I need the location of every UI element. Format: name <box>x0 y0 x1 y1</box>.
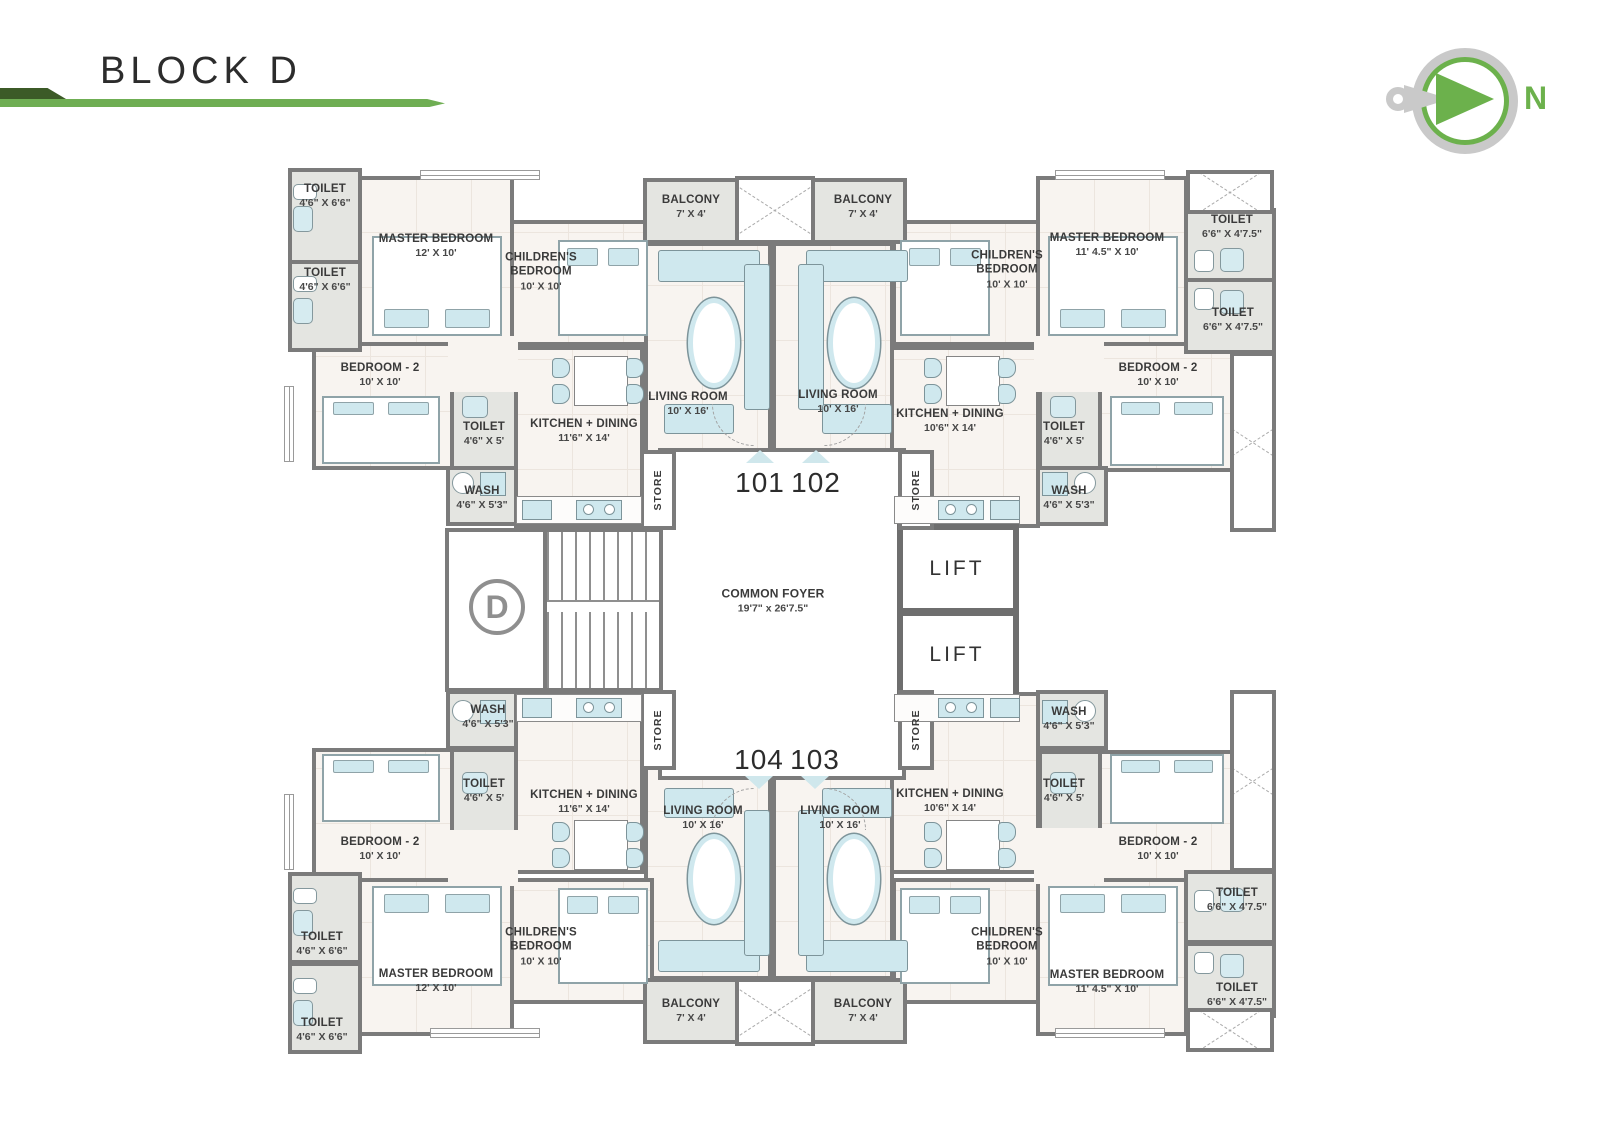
sofa-icon <box>744 264 770 410</box>
toilet-wc-icon <box>1220 954 1244 978</box>
chair-icon <box>626 848 644 868</box>
corridor-104 <box>448 830 518 886</box>
title-accent-bar-dark <box>0 88 66 99</box>
window <box>1055 170 1165 180</box>
corridor-103 <box>1034 828 1104 884</box>
unit-number-102: 102 <box>791 467 841 499</box>
label-store-102: STORE <box>910 470 922 511</box>
chair-icon <box>924 822 942 842</box>
basin-icon <box>293 888 317 904</box>
duct-shaft <box>1186 1008 1274 1052</box>
sink-icon <box>990 698 1020 718</box>
chair-icon <box>626 358 644 378</box>
chair-icon <box>924 848 942 868</box>
label-lift-2: LIFT <box>929 643 984 667</box>
chair-icon <box>998 848 1016 868</box>
entry-arrow-103 <box>801 776 829 789</box>
compass-tail-ring-icon <box>1386 87 1410 111</box>
label-toilet-a-101: TOILET4'6" X 6'6" <box>280 182 370 211</box>
label-kitchen-103: KITCHEN + DINING10'6" X 14' <box>870 787 1030 816</box>
window <box>284 794 294 870</box>
stove-icon <box>576 500 622 520</box>
chair-icon <box>924 384 942 404</box>
unit-number-101: 101 <box>735 467 785 499</box>
label-toilet-b-101: TOILET4'6" X 6'6" <box>280 266 370 295</box>
dining-table-icon <box>946 820 1000 870</box>
coffee-table-icon <box>688 834 740 924</box>
label-wash-101: WASH4'6" X 5'3" <box>442 484 522 513</box>
label-living-102: LIVING ROOM10' X 16' <box>778 388 898 417</box>
title-underline-bar <box>0 99 445 107</box>
stove-icon <box>938 698 984 718</box>
duct-shaft <box>1230 690 1276 872</box>
chair-icon <box>924 358 942 378</box>
chair-icon <box>626 822 644 842</box>
north-arrow-icon <box>1436 73 1494 125</box>
label-bedroom2-101: BEDROOM - 210' X 10' <box>320 361 440 390</box>
chair-icon <box>998 822 1016 842</box>
label-master-102: MASTER BEDROOM11' 4.5" X 10' <box>1032 231 1182 260</box>
north-compass: N <box>1390 44 1560 164</box>
window <box>284 386 294 462</box>
stair-mid-landing <box>547 600 659 612</box>
window <box>1055 1028 1165 1038</box>
label-common-foyer: COMMON FOYER19'7" x 26'7.5" <box>683 586 863 615</box>
basin-icon <box>293 978 317 994</box>
unit-number-103: 103 <box>790 744 840 776</box>
coffee-table-icon <box>688 298 740 388</box>
toilet-wc-icon <box>293 298 313 324</box>
label-toilet-c-103: TOILET4'6" X 5' <box>1024 777 1104 806</box>
basin-icon <box>1194 250 1214 272</box>
coffee-table-icon <box>828 834 880 924</box>
label-store-104: STORE <box>652 710 664 751</box>
toilet-wc-icon <box>1220 248 1244 272</box>
label-kitchen-101: KITCHEN + DINING11'6" X 14' <box>504 417 664 446</box>
sink-icon <box>522 500 552 520</box>
label-balcony-104: BALCONY7' X 4' <box>646 997 736 1026</box>
label-toilet-a-104: TOILET4'6" X 6'6" <box>277 930 367 959</box>
duct-shaft <box>735 978 815 1046</box>
double-bed-icon <box>322 754 440 822</box>
label-children-103: CHILDREN'S BEDROOM10' X 10' <box>961 926 1053 969</box>
label-bedroom2-102: BEDROOM - 210' X 10' <box>1098 361 1218 390</box>
double-bed-icon <box>1110 396 1224 466</box>
label-bedroom2-104: BEDROOM - 210' X 10' <box>320 835 440 864</box>
basin-icon <box>1194 952 1214 974</box>
label-toilet-a-102: TOILET6'6" X 4'7.5" <box>1177 213 1287 242</box>
label-store-101: STORE <box>652 470 664 511</box>
corridor-101 <box>448 336 518 392</box>
label-kitchen-104: KITCHEN + DINING11'6" X 14' <box>504 788 664 817</box>
label-wash-103: WASH4'6" X 5'3" <box>1029 705 1109 734</box>
label-lift-1: LIFT <box>929 557 984 581</box>
toilet-wc-icon <box>1050 396 1076 418</box>
window <box>430 1028 540 1038</box>
label-living-101: LIVING ROOM10' X 16' <box>628 390 748 419</box>
duct-shaft <box>1230 352 1276 532</box>
dining-table-icon <box>946 356 1000 406</box>
label-balcony-102: BALCONY7' X 4' <box>818 193 908 222</box>
dining-table-icon <box>574 820 628 870</box>
label-toilet-b-104: TOILET4'6" X 6'6" <box>277 1016 367 1045</box>
north-label: N <box>1524 80 1547 117</box>
label-master-104: MASTER BEDROOM12' X 10' <box>361 967 511 996</box>
entry-arrow-102 <box>802 450 830 463</box>
label-store-103: STORE <box>910 710 922 751</box>
entry-arrow-104 <box>745 776 773 789</box>
label-toilet-b-103: TOILET6'6" X 4'7.5" <box>1182 981 1292 1010</box>
unit-number-104: 104 <box>734 744 784 776</box>
label-wash-102: WASH4'6" X 5'3" <box>1029 484 1109 513</box>
chair-icon <box>552 822 570 842</box>
stove-icon <box>576 698 622 718</box>
double-bed-icon <box>1110 754 1224 824</box>
label-toilet-a-103: TOILET6'6" X 4'7.5" <box>1182 886 1292 915</box>
chair-icon <box>998 384 1016 404</box>
entry-arrow-101 <box>746 450 774 463</box>
duct-shaft <box>735 176 815 244</box>
label-master-101: MASTER BEDROOM12' X 10' <box>361 232 511 261</box>
block-d-logo: D <box>469 579 525 635</box>
toilet-wc-icon <box>462 396 488 418</box>
label-balcony-101: BALCONY7' X 4' <box>646 193 736 222</box>
label-toilet-c-102: TOILET4'6" X 5' <box>1024 420 1104 449</box>
sink-icon <box>990 500 1020 520</box>
label-children-104: CHILDREN'S BEDROOM10' X 10' <box>495 926 587 969</box>
window <box>420 170 540 180</box>
stove-icon <box>938 500 984 520</box>
corridor-102 <box>1034 336 1104 392</box>
chair-icon <box>552 358 570 378</box>
floor-plan-page: BLOCK D N <box>0 0 1600 1143</box>
label-living-104: LIVING ROOM10' X 16' <box>643 804 763 833</box>
label-wash-104: WASH4'6" X 5'3" <box>448 703 528 732</box>
coffee-table-icon <box>828 298 880 388</box>
label-bedroom2-103: BEDROOM - 210' X 10' <box>1098 835 1218 864</box>
chair-icon <box>552 848 570 868</box>
duct-shaft <box>1186 170 1274 214</box>
label-toilet-b-102: TOILET6'6" X 4'7.5" <box>1178 306 1288 335</box>
label-balcony-103: BALCONY7' X 4' <box>818 997 908 1026</box>
dining-table-icon <box>574 356 628 406</box>
chair-icon <box>552 384 570 404</box>
page-title: BLOCK D <box>100 50 302 93</box>
label-master-103: MASTER BEDROOM11' 4.5" X 10' <box>1032 968 1182 997</box>
chair-icon <box>998 358 1016 378</box>
double-bed-icon <box>322 396 440 464</box>
label-children-101: CHILDREN'S BEDROOM10' X 10' <box>495 251 587 294</box>
